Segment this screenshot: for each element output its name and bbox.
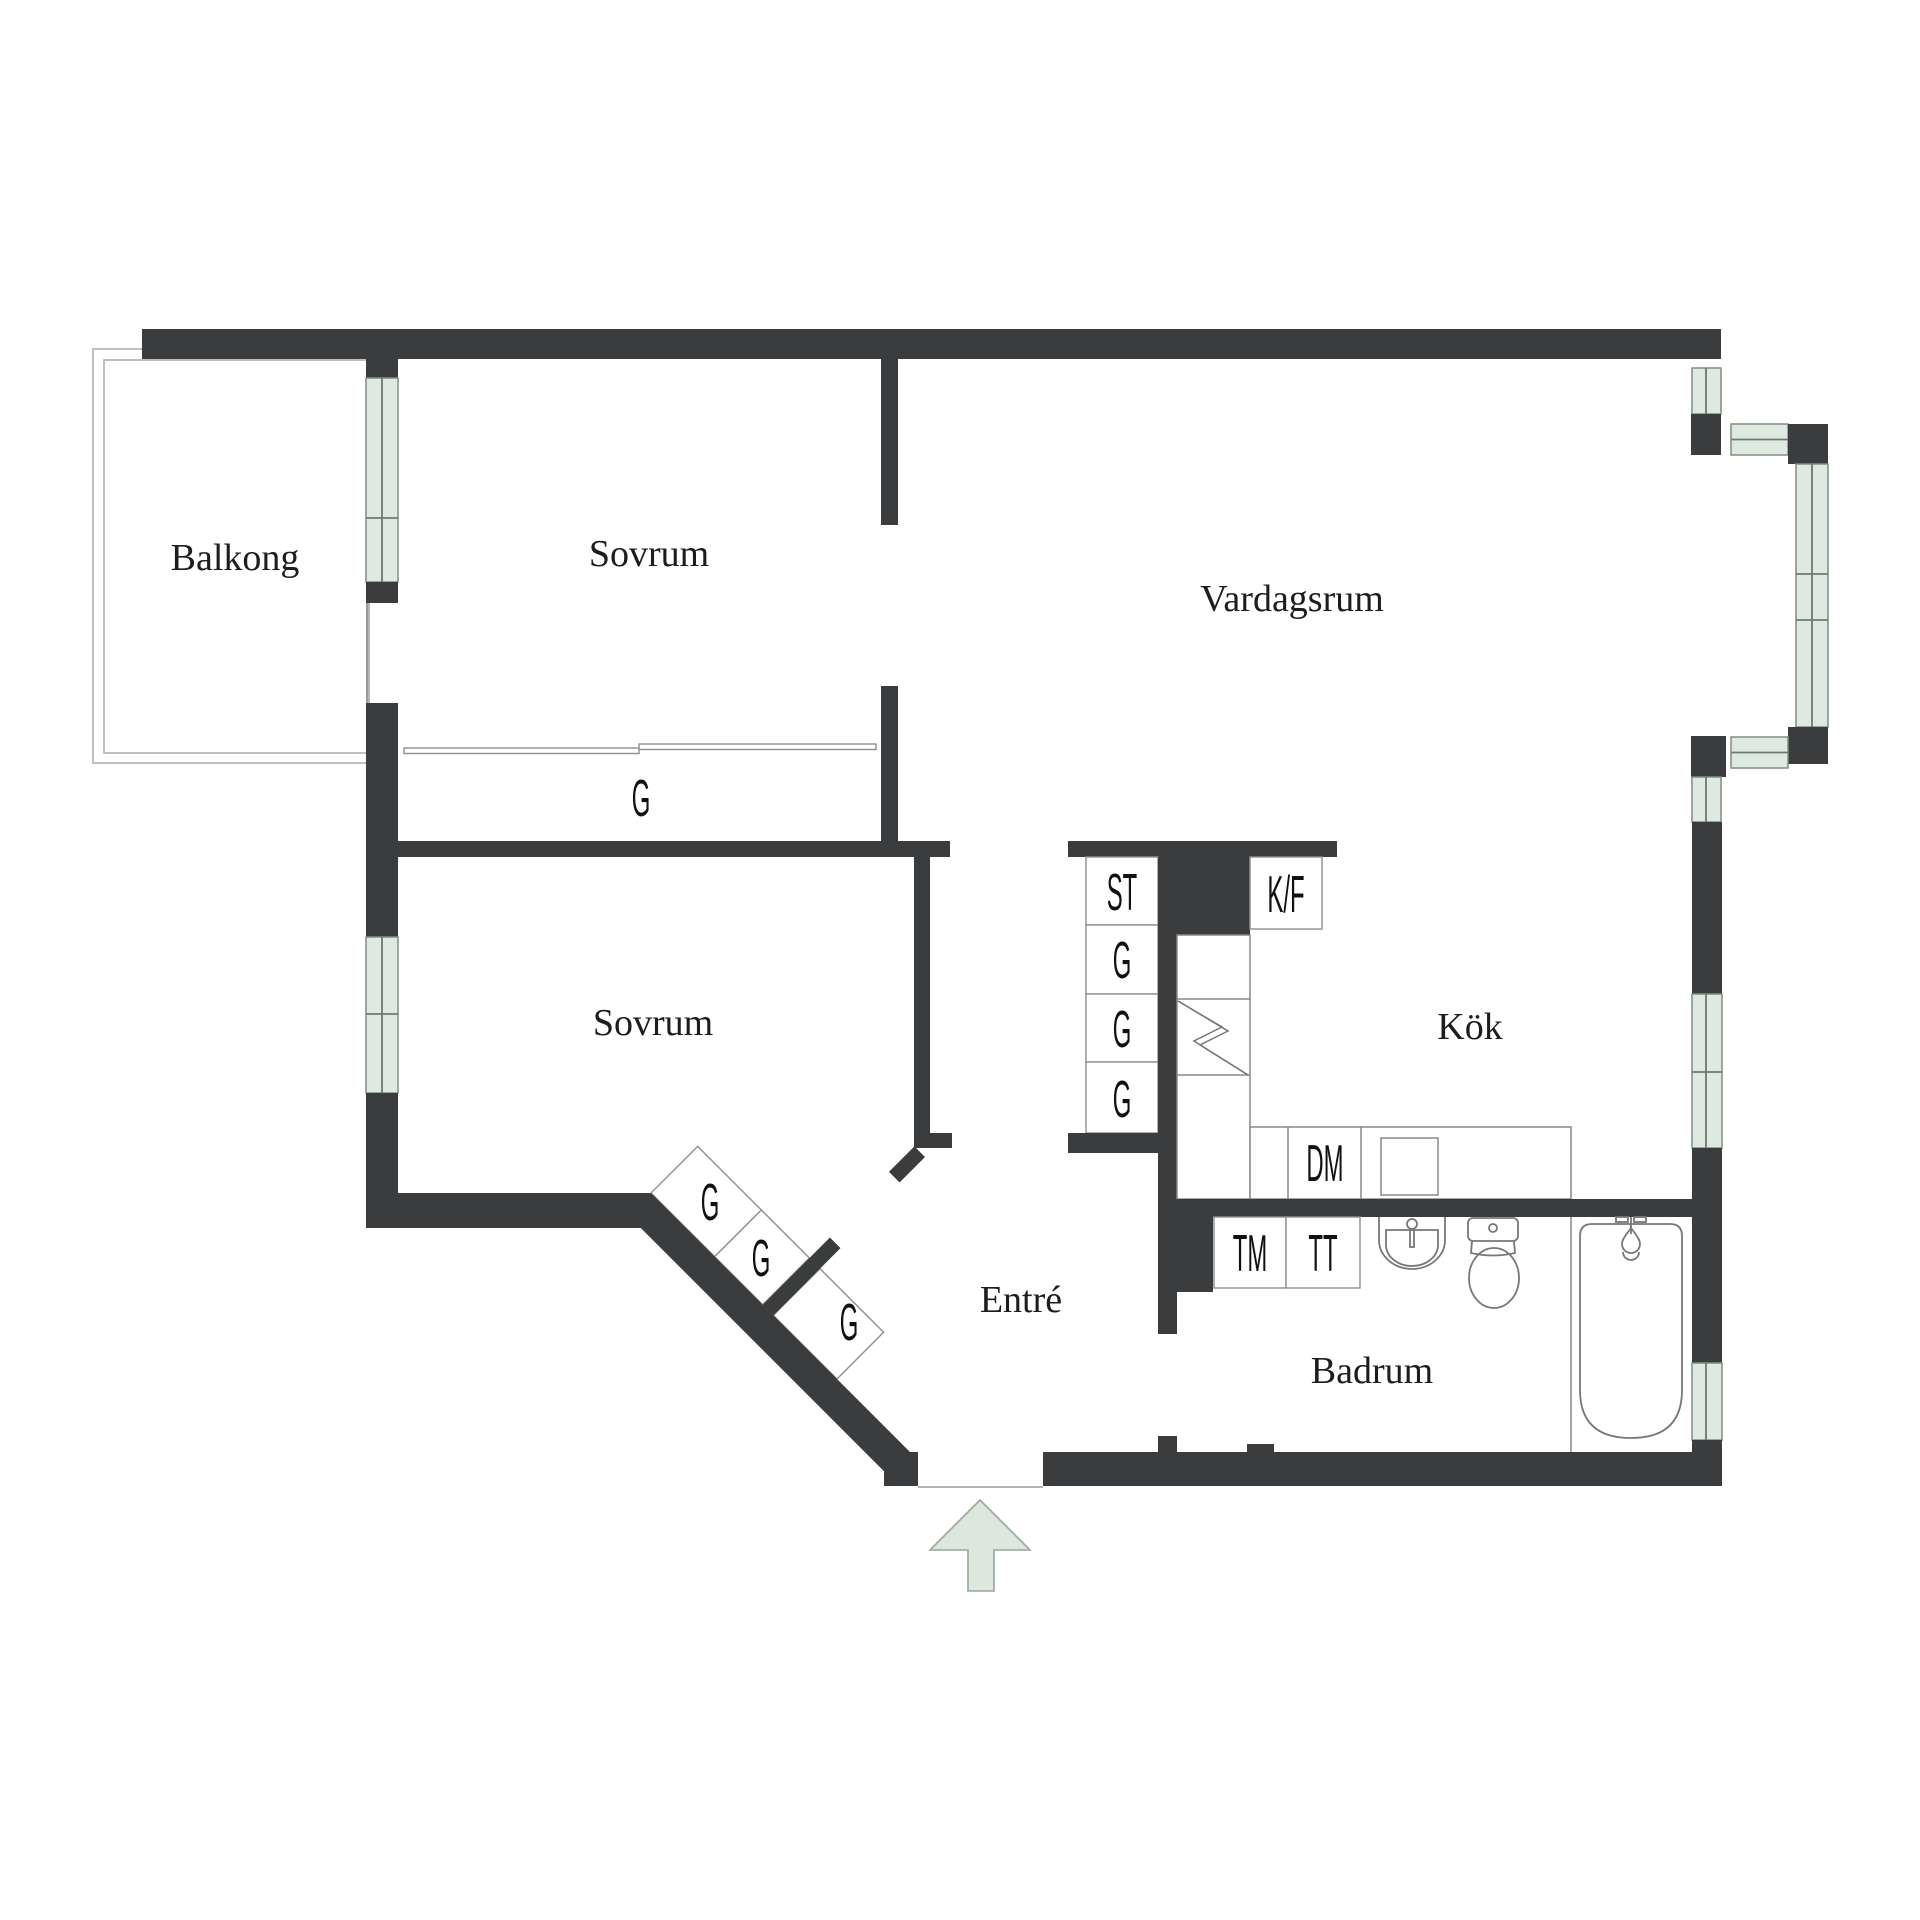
svg-text:G: G (840, 1292, 859, 1351)
svg-text:G: G (1113, 1069, 1132, 1128)
svg-text:G: G (1113, 930, 1132, 989)
svg-text:ST: ST (1107, 862, 1138, 921)
svg-text:Kök: Kök (1437, 1006, 1502, 1048)
svg-text:TT: TT (1308, 1223, 1337, 1282)
svg-text:G: G (1113, 999, 1132, 1058)
svg-text:G: G (701, 1172, 720, 1231)
svg-text:DM: DM (1306, 1133, 1343, 1192)
svg-text:K/F: K/F (1267, 864, 1304, 923)
svg-text:Sovrum: Sovrum (589, 533, 709, 575)
svg-text:Entré: Entré (980, 1279, 1062, 1321)
svg-text:G: G (752, 1228, 771, 1287)
svg-text:Badrum: Badrum (1311, 1350, 1433, 1392)
svg-text:Balkong: Balkong (171, 537, 300, 579)
svg-text:TM: TM (1233, 1223, 1268, 1282)
svg-text:Sovrum: Sovrum (593, 1002, 713, 1044)
svg-text:Vardagsrum: Vardagsrum (1200, 578, 1384, 620)
svg-text:G: G (632, 768, 651, 827)
